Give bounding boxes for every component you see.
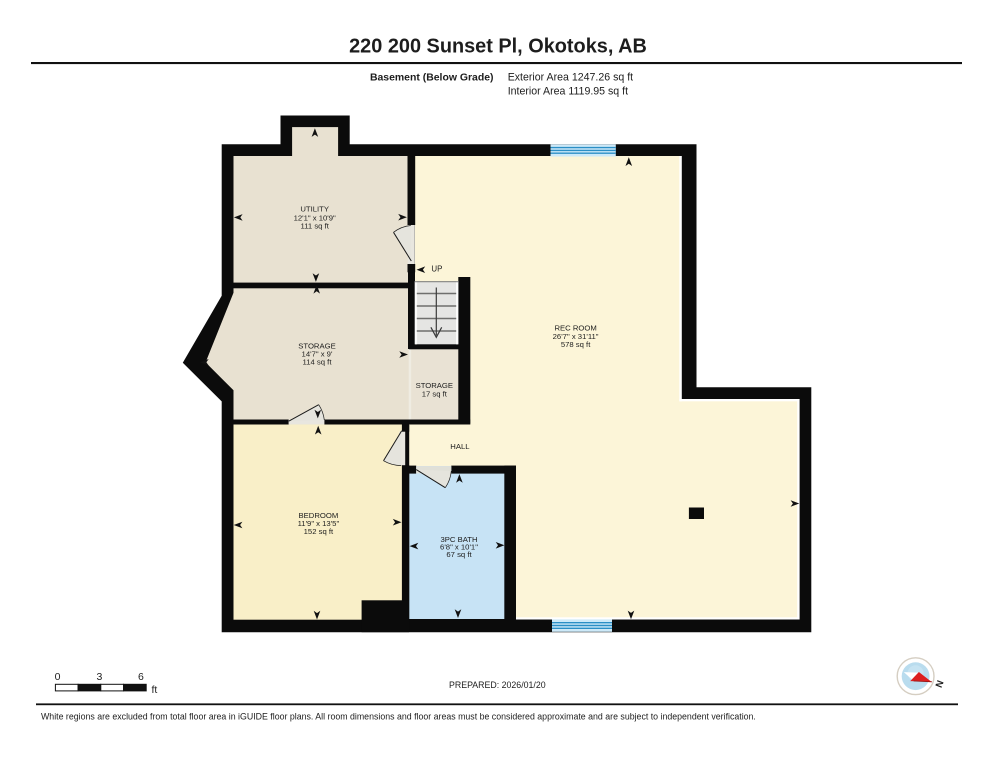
svg-text:0: 0 — [55, 671, 61, 683]
svg-text:Exterior Area 1247.26 sq ft: Exterior Area 1247.26 sq ft — [508, 72, 633, 84]
svg-text:3: 3 — [96, 671, 102, 683]
svg-text:Interior Area 1119.95 sq ft: Interior Area 1119.95 sq ft — [508, 85, 628, 97]
svg-text:ft: ft — [152, 684, 158, 696]
svg-text:111 sq ft: 111 sq ft — [301, 221, 330, 230]
svg-text:67 sq ft: 67 sq ft — [446, 550, 472, 559]
svg-text:Basement (Below Grade): Basement (Below Grade) — [370, 73, 494, 84]
svg-text:220 200 Sunset Pl, Okotoks, AB: 220 200 Sunset Pl, Okotoks, AB — [349, 36, 647, 58]
svg-text:PREPARED: 2026/01/20: PREPARED: 2026/01/20 — [449, 680, 546, 690]
svg-text:White regions are excluded fro: White regions are excluded from total fl… — [41, 712, 756, 722]
svg-text:HALL: HALL — [450, 442, 470, 451]
svg-text:UTILITY: UTILITY — [300, 205, 329, 214]
svg-text:152 sq ft: 152 sq ft — [304, 527, 334, 536]
svg-text:578 sq ft: 578 sq ft — [561, 340, 591, 349]
svg-text:UP: UP — [431, 265, 442, 274]
svg-text:17 sq ft: 17 sq ft — [422, 389, 448, 398]
svg-text:6: 6 — [138, 671, 144, 683]
svg-text:114 sq ft: 114 sq ft — [303, 358, 333, 367]
